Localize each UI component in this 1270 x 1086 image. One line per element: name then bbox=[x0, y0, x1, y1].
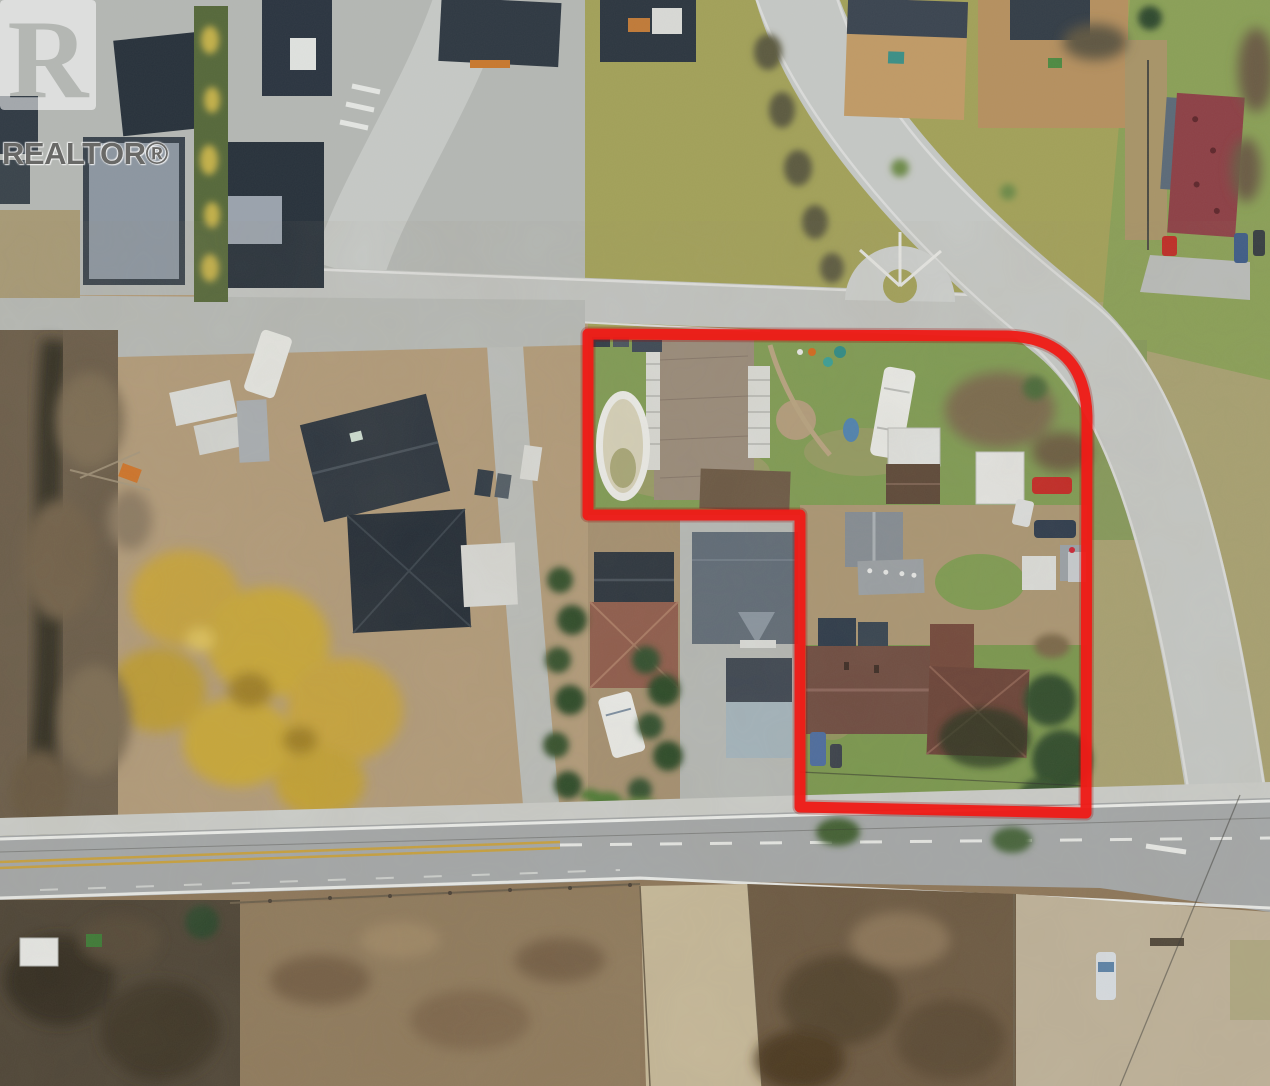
aerial-photo: R REALTOR® bbox=[0, 0, 1270, 1086]
aerial-scene bbox=[0, 0, 1270, 1086]
